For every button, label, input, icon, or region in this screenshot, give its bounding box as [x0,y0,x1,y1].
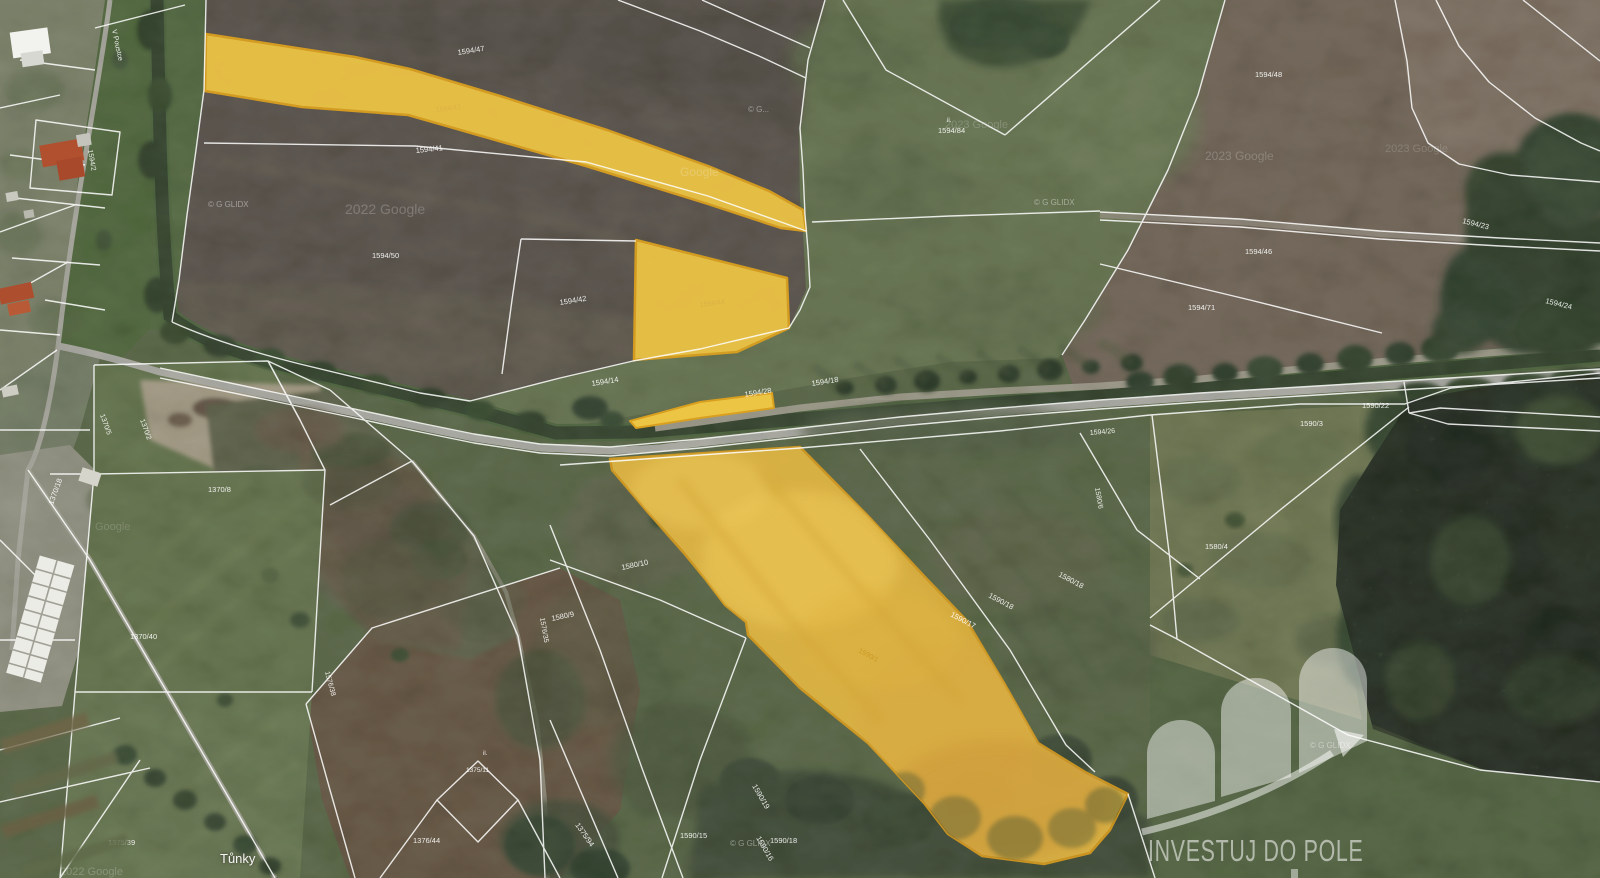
svg-text:Google: Google [95,521,130,533]
svg-text:INVESTUJ DO POLE: INVESTUJ DO POLE [1148,833,1363,868]
svg-text:2023 Google: 2023 Google [945,119,1008,131]
svg-text:1370/8: 1370/8 [208,485,231,494]
svg-text:2023 Google: 2023 Google [1205,149,1274,163]
svg-text:© G GLIDX: © G GLIDX [1034,198,1075,207]
svg-text:1580/4: 1580/4 [1205,542,1228,551]
svg-text:Tůnky: Tůnky [220,851,256,866]
svg-text:1594/48: 1594/48 [1255,70,1282,79]
svg-text:1375/11: 1375/11 [466,767,489,774]
svg-text:2022 Google: 2022 Google [345,201,425,217]
svg-text:1594/50: 1594/50 [372,251,399,260]
svg-text:1376/44: 1376/44 [413,836,440,845]
svg-text:2023 Google: 2023 Google [1385,143,1448,155]
svg-text:1590/22: 1590/22 [1362,401,1389,410]
svg-text:1594/71: 1594/71 [1188,303,1215,312]
svg-text:Google: Google [680,165,719,179]
svg-text:2022 Google: 2022 Google [60,866,123,878]
svg-text:1590/15: 1590/15 [680,831,707,840]
svg-text:1370/40: 1370/40 [130,632,157,641]
svg-text:© G GLIDX: © G GLIDX [730,839,771,848]
svg-text:1594/46: 1594/46 [1245,247,1272,256]
svg-text:il.: il. [483,751,488,757]
svg-text:© G...: © G... [748,105,769,114]
svg-text:© G GLIDX: © G GLIDX [208,200,249,209]
svg-text:1590/3: 1590/3 [1300,419,1323,428]
svg-text:1590/18: 1590/18 [770,836,797,845]
